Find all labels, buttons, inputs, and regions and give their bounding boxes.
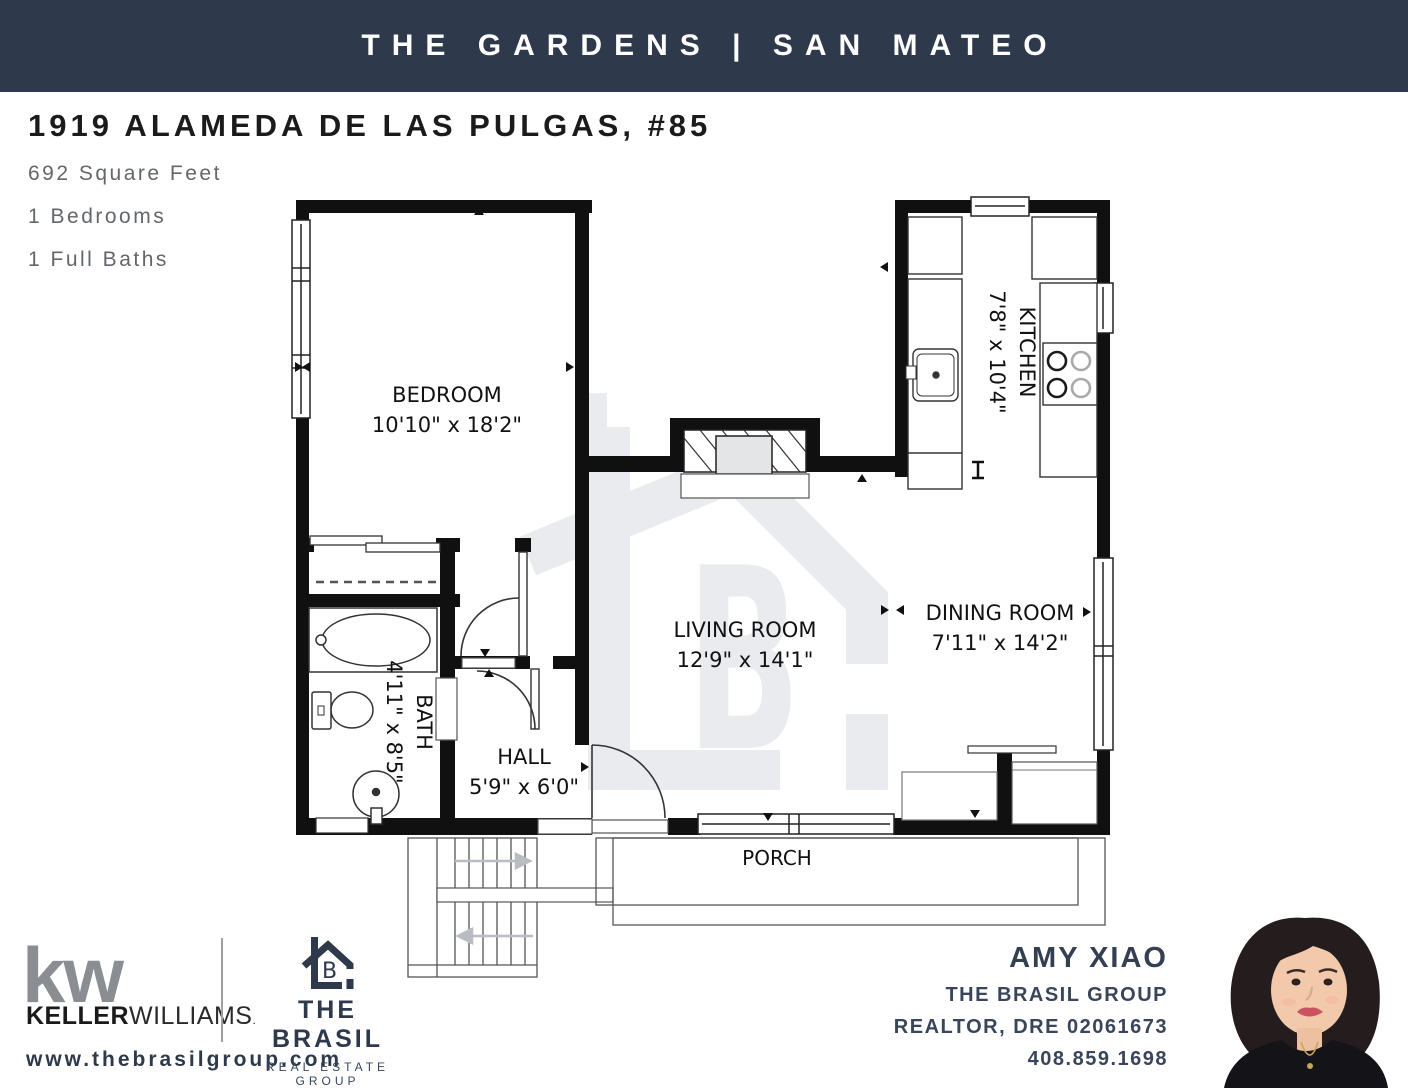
room-label-living: LIVING ROOM 12'9" x 14'1" — [674, 615, 817, 675]
room-label-porch: PORCH — [742, 843, 812, 873]
room-label-bath: BATH 4'11" x 8'5" — [379, 660, 439, 783]
room-label-bedroom: BEDROOM 10'10" x 18'2" — [372, 380, 522, 440]
porch-outline — [596, 838, 1105, 925]
room-label-hall: HALL 5'9" x 6'0" — [469, 742, 579, 802]
brasil-house-logo-icon: B — [298, 934, 358, 996]
agent-info: AMY XIAO THE BRASIL GROUP REALTOR, DRE 0… — [894, 942, 1168, 1071]
staircase — [408, 838, 613, 977]
room-label-kitchen: KITCHEN 7'8" x 10'4" — [982, 290, 1042, 413]
agent-phone: 408.859.1698 — [894, 1048, 1168, 1071]
brasil-wordmark: THE BRASIL REAL ESTATE GROUP — [240, 996, 415, 1088]
footer-divider — [221, 938, 223, 1042]
stove — [1043, 343, 1097, 405]
fireplace — [681, 430, 809, 498]
floor-plan: B — [0, 0, 1408, 1088]
toilet — [312, 692, 373, 729]
agent-photo — [1202, 902, 1408, 1088]
room-label-dining: DINING ROOM 7'11" x 14'2" — [926, 598, 1075, 658]
agent-team: THE BRASIL GROUP — [894, 984, 1168, 1007]
agent-license: REALTOR, DRE 02061673 — [894, 1016, 1168, 1039]
agent-name: AMY XIAO — [894, 942, 1168, 975]
cased-opening-marker — [972, 462, 984, 478]
svg-text:B: B — [322, 959, 337, 984]
kitchen-sink — [906, 349, 958, 401]
closet — [310, 536, 440, 582]
